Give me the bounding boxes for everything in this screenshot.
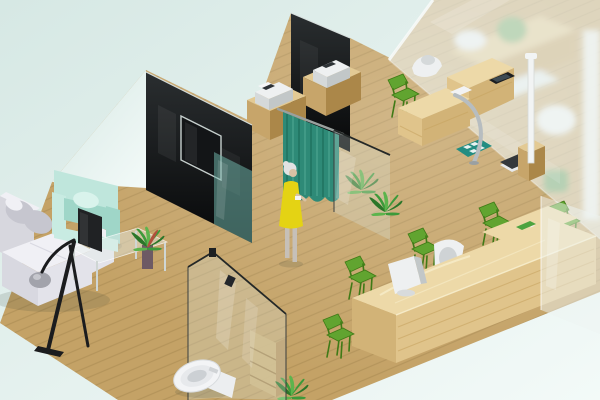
tv-reflection [185,122,197,166]
glass-hinge [209,248,216,257]
isometric-clinic-render [0,0,600,400]
woman-leg [285,226,290,258]
height-measuring-pole [528,58,534,163]
right-glass-wall [541,196,600,334]
render-canvas [0,0,600,400]
woman-leg [293,228,298,262]
woman-face [289,169,297,177]
lamp-dome-shade [29,272,51,288]
